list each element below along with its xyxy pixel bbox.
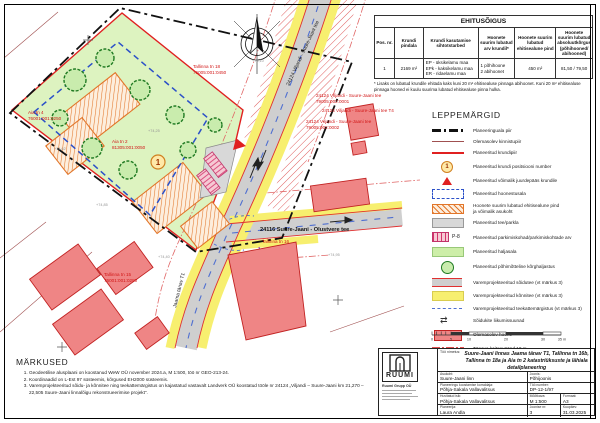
planning-boundary-symbol (432, 129, 468, 132)
note-item: Geodeetilise alusplaani on koostanud WeW… (29, 370, 372, 377)
buildable-zone-symbol (432, 189, 468, 199)
legend-item: Hoonete suurim lubatud ehitisealune pind… (432, 203, 594, 214)
column-header: Hoonete suurim lubatud absoluutkõrgus (p… (556, 28, 593, 59)
door-logo-icon (389, 354, 411, 372)
svg-text:30: 30 (541, 338, 545, 342)
building-rights-title: EHITUSÕIGUS (374, 15, 593, 27)
elevation-mark: +74,62 (54, 147, 66, 151)
elevation-mark: +74,95 (328, 253, 340, 257)
svg-text:1: 1 (156, 158, 161, 167)
scale-format-fields: Mõõtkava: M 1:500 Formaat: A3 (528, 394, 594, 405)
scale-field: Mõõtkava: M 1:500 (528, 394, 561, 404)
column-header: Krundi kasutamise sihtotstarbed (423, 28, 478, 59)
notes-section: MÄRKUSED Geodeetilise alusplaani on koos… (16, 357, 372, 396)
legend-item: Olemasolev kinnistupiir (432, 138, 594, 145)
legend-item: ⇄ Sõidukite liikumissuunad (432, 316, 594, 325)
svg-text:10: 10 (467, 338, 471, 342)
existing-boundary-symbol (432, 141, 468, 142)
road-parcel-label: 24124 Viljandi - Suure-Jaani tee (306, 119, 372, 124)
company-contact-line (382, 399, 410, 400)
plot-boundary-symbol (432, 152, 468, 154)
tall-greenery-symbol (432, 261, 468, 274)
column-header: Krundi pindala (394, 28, 423, 59)
road-parcel-cadastre: 79005:002:0001 (316, 99, 350, 104)
table-header-row: Pos. nr. Krundi pindala Krundi kasutamis… (375, 28, 593, 59)
legend-item: Planeeritud hoonestusala (432, 189, 594, 199)
organizer-field: Planeeringu koostamise korraldaja: Põhja… (438, 383, 528, 394)
legend-item: Planeeritud haljasala (432, 247, 594, 257)
project-title-label: Töö nimetus: (438, 349, 462, 371)
parcel-cadastre: 81305:001:0050 (112, 145, 146, 150)
legend-item: Planeeritud võimalik juurdepääs krundile (432, 177, 594, 185)
planner-field: Planeerija: Laura Andla (438, 405, 528, 416)
table-row: 1 2169 m² EP - üksikelamu maa EPk - kaks… (375, 58, 593, 78)
area-cell: 2169 m² (394, 58, 423, 78)
elevation-mark: +74,40 (158, 255, 170, 259)
parcel-cadastre: 76001:001:0280 (104, 278, 138, 283)
building-area-symbol (432, 204, 468, 214)
parcel-label: Aia tn 4 (28, 110, 44, 115)
company-logo-mark: RUUMI (382, 352, 418, 382)
legend-item: Planeeringuala piir (432, 127, 594, 134)
location-field: Asukoht: Suure-Jaani linn (438, 372, 528, 383)
legend-item: Varemprojekteeritud teekattemärgistus (v… (432, 305, 594, 312)
legend-item: Planeeritud põhimõtteline kõrghaljastus (432, 261, 594, 274)
legend-item: Planeeritud krundipiir (432, 149, 594, 156)
legend-item: 1 Planeeritud krundi positsiooni number (432, 161, 594, 173)
drawing-number-field: Joonise nr: 3 (528, 405, 561, 416)
road-parcel-label: 24124 Viljandi - Suure-Jaani tee T4 (322, 108, 394, 113)
elevation-mark: +75,10 (252, 59, 264, 63)
date-field: Kuupäev: 31.03.2025 (561, 405, 594, 416)
company-contact-line (382, 393, 412, 394)
logo-text: RUUMI (386, 372, 414, 379)
parcel-label: Tallinna tn 16 (262, 239, 290, 244)
building-rights-table: EHITUSÕIGUS Pos. nr. Krundi pindala Krun… (374, 15, 593, 92)
road-parcel-cadastre: 79005:002:0002 (306, 125, 340, 130)
elevation-mark: +74,85 (96, 203, 108, 207)
drawing-field: Joonis: Põhijoonis (528, 372, 594, 383)
table-footnote: * Lisaks on lubatud krundile ehitada kak… (374, 81, 593, 92)
column-header: Hoonete suurim lubatud arv krundil* (478, 28, 515, 59)
road-parking-symbol (432, 218, 468, 228)
svg-text:0: 0 (431, 338, 433, 342)
company-contact-line (382, 396, 418, 397)
plot-position-number: 1 (151, 155, 165, 169)
legend-item: P-8 Planeeritud parkimiskohad/parkimisko… (432, 232, 594, 242)
svg-text:5: 5 (450, 338, 452, 342)
company-name: Ruumi Grupp OÜ (382, 384, 411, 388)
detail-plan-sheet: 1 Aia tn 4 76001:001:0250 Aia tn 2 81305… (0, 0, 600, 423)
building-count-cell: 1 põhihoone 2 abihoonet (478, 58, 515, 78)
note-item: Varemprojekteeritud sõidu- ja kõnnitee n… (29, 383, 372, 396)
pos-nr-cell: 1 (375, 58, 395, 78)
use-purpose-cell: EP - üksikelamu maa EPk - kaksikelamu ma… (423, 58, 478, 78)
parcel-cadastre: 76001:001:0250 (28, 116, 62, 121)
height-cell: 81,50 / 79,50 (556, 58, 593, 78)
cross-road-name: 24116 Suure-Jaani - Olustvere tee (260, 227, 349, 233)
legend-item: Varemprojekteeritud kõnnitee (vt märkus … (432, 291, 594, 301)
road-parcel-label: 24124 Viljandi - Suure-Jaani tee (316, 93, 382, 98)
interested-party-field: Huvitatud isik: Põhja-Sakala Vallavalits… (438, 394, 528, 405)
footprint-cell: 450 m² (515, 58, 556, 78)
project-title-row: Töö nimetus: Suure-Jaani linnas Jaama tä… (438, 349, 594, 372)
sheet-date-fields: Joonise nr: 3 Kuupäev: 31.03.2025 (528, 405, 594, 416)
company-contact-line (382, 390, 416, 391)
format-field: Formaat: A3 (561, 394, 594, 404)
parcel-label: Aia tn 2 (112, 139, 128, 144)
parcel-label: Tallinna tn 18 (193, 64, 221, 69)
company-logo: RUUMI Ruumi Grupp OÜ (379, 349, 438, 415)
svg-text:20: 20 (504, 338, 508, 342)
project-title: Suure-Jaani linnas Jaama tänav T1, Talli… (462, 349, 594, 371)
position-number-symbol: 1 (432, 161, 468, 173)
legend-item: Planeeritud tee/parkla (432, 218, 594, 228)
work-number-field: Töö number: DP-12-1/97 (528, 383, 594, 394)
sidewalk-symbol (432, 291, 468, 301)
title-block: RUUMI Ruumi Grupp OÜ Töö nimetus: Suure-… (378, 348, 595, 416)
notes-title: MÄRKUSED (16, 357, 372, 367)
green-area-symbol (432, 247, 468, 257)
traffic-directions-symbol: ⇄ (432, 316, 468, 325)
road-marking-symbol (432, 308, 468, 309)
scale-bar: 0 5 10 20 30 35 m (428, 328, 570, 342)
elevation-mark: +74,25 (148, 129, 160, 133)
legend-title: LEPPEMÄRGID (432, 110, 594, 120)
parcel-label: Tallinna tn 15 (104, 272, 132, 277)
access-symbol (432, 177, 468, 185)
carriageway-symbol (432, 278, 468, 287)
svg-text:35 m: 35 m (558, 338, 566, 342)
column-header: Pos. nr. (375, 28, 395, 59)
parking-spaces-symbol: P-8 (432, 232, 468, 242)
parcel-cadastre: 76005:001:0450 (193, 70, 227, 75)
column-header: Hoonete suurim lubatud ehitisealune pind (515, 28, 556, 59)
legend-item: Varemprojekteeritud sõidutee (vt märkus … (432, 278, 594, 287)
